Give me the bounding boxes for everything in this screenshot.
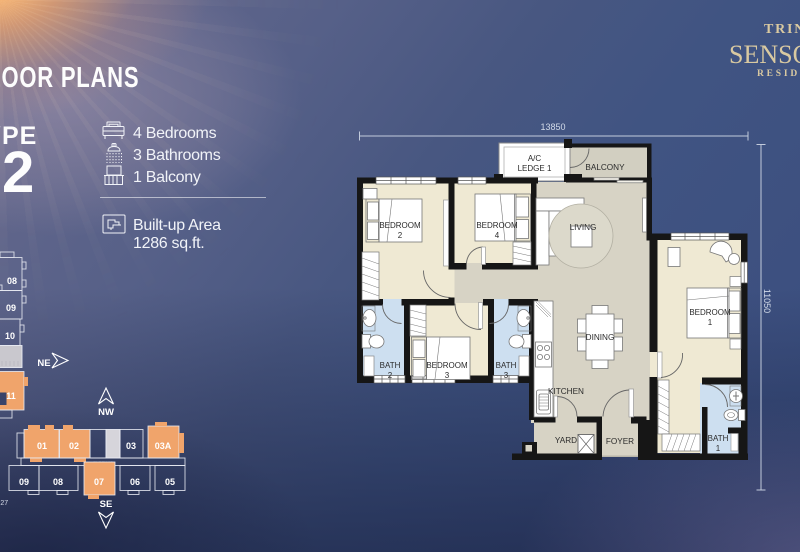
- svg-text:10: 10: [5, 331, 15, 341]
- svg-text:NE: NE: [37, 358, 50, 369]
- svg-text:BEDROOM: BEDROOM: [426, 361, 468, 370]
- svg-text:08: 08: [7, 276, 17, 286]
- svg-text:BEDROOM: BEDROOM: [379, 221, 421, 230]
- svg-text:11050: 11050: [762, 289, 772, 313]
- svg-text:BEDROOM: BEDROOM: [689, 308, 731, 317]
- svg-text:SE: SE: [100, 499, 113, 510]
- svg-text:-27: -27: [0, 500, 8, 507]
- svg-text:1: 1: [708, 318, 713, 327]
- svg-text:2: 2: [398, 231, 403, 240]
- svg-text:02: 02: [69, 441, 79, 451]
- svg-text:A/C: A/C: [528, 154, 542, 163]
- svg-text:NW: NW: [98, 407, 114, 418]
- svg-text:FOYER: FOYER: [606, 437, 634, 446]
- svg-text:03: 03: [126, 441, 136, 451]
- svg-text:BALCONY: BALCONY: [585, 163, 625, 172]
- svg-text:11: 11: [6, 391, 16, 401]
- svg-text:07: 07: [94, 477, 104, 487]
- svg-text:08: 08: [53, 477, 63, 487]
- svg-text:DINING: DINING: [586, 333, 615, 342]
- svg-text:3: 3: [504, 371, 509, 380]
- svg-text:03A: 03A: [155, 441, 172, 451]
- svg-text:LIVING: LIVING: [570, 223, 597, 232]
- svg-text:4: 4: [495, 231, 500, 240]
- svg-text:1: 1: [716, 444, 721, 453]
- svg-text:BEDROOM: BEDROOM: [476, 221, 518, 230]
- svg-text:BATH: BATH: [496, 361, 517, 370]
- svg-text:BATH: BATH: [380, 361, 401, 370]
- svg-text:05: 05: [165, 477, 175, 487]
- svg-text:01: 01: [37, 441, 47, 451]
- svg-text:LEDGE 1: LEDGE 1: [518, 164, 552, 173]
- svg-text:09: 09: [6, 303, 16, 313]
- svg-text:13850: 13850: [540, 122, 565, 132]
- svg-text:2: 2: [388, 371, 393, 380]
- svg-text:09: 09: [19, 477, 29, 487]
- svg-text:BATH: BATH: [708, 434, 729, 443]
- svg-text:KITCHEN: KITCHEN: [548, 387, 584, 396]
- svg-text:3: 3: [445, 371, 450, 380]
- svg-text:06: 06: [130, 477, 140, 487]
- svg-text:YARD: YARD: [555, 436, 577, 445]
